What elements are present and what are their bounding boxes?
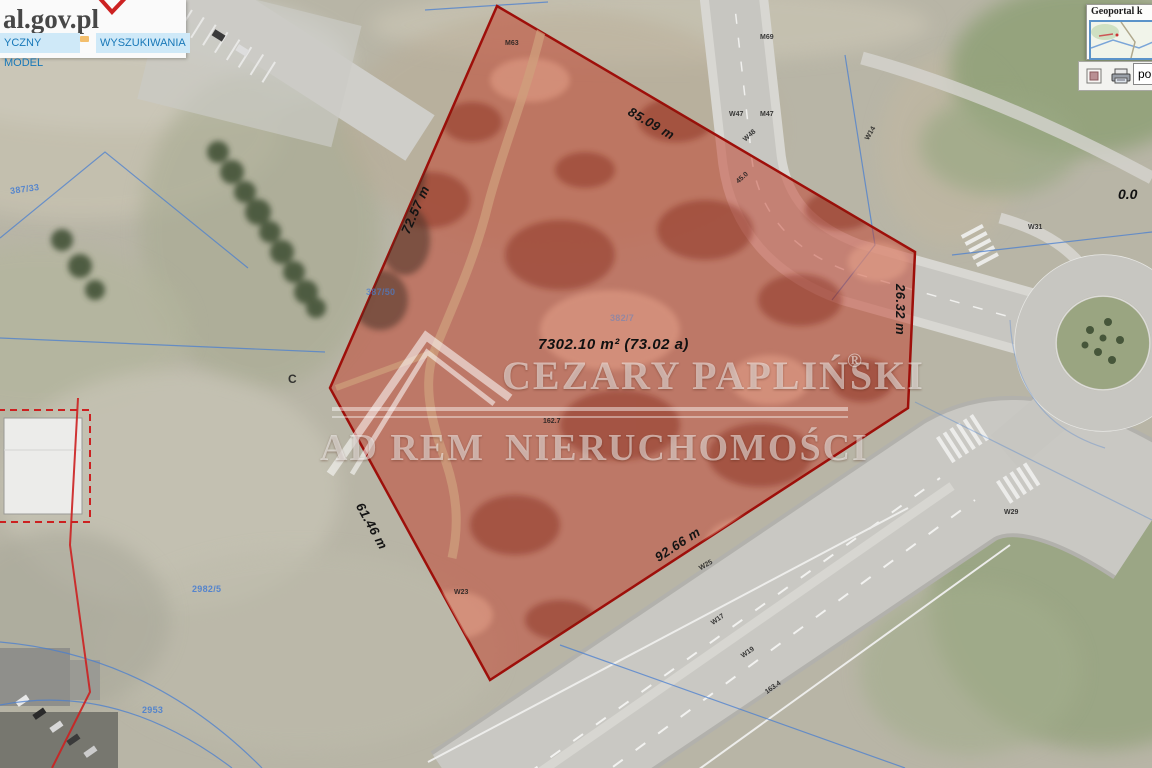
measurement-right-edge: 26.32 m xyxy=(893,284,908,335)
survey-point-label: W31 xyxy=(1028,224,1042,231)
logo-red-mark xyxy=(94,0,146,15)
printer-icon xyxy=(1111,68,1131,84)
survey-point-label: W23 xyxy=(454,589,468,596)
survey-point-label: W29 xyxy=(1004,509,1018,516)
overview-minimap[interactable] xyxy=(1089,20,1152,60)
print-icon-button[interactable] xyxy=(1111,68,1131,84)
watermark-brand-right: NIERUCHOMOŚCI xyxy=(505,426,869,470)
parcel-number: 2953 xyxy=(142,705,163,715)
tab-wyszukiwania[interactable]: WYSZUKIWANIA xyxy=(96,33,190,53)
layers-icon-button[interactable] xyxy=(1086,68,1102,84)
site-logo-text[interactable]: al.gov.pl xyxy=(3,4,99,35)
survey-point-label: M63 xyxy=(505,40,519,47)
survey-point-label: M69 xyxy=(760,34,774,41)
layers-icon xyxy=(1086,68,1102,84)
tab-numeryczny-model[interactable]: YCZNY MODEL xyxy=(0,33,80,53)
overview-panel-title: Geoportal k xyxy=(1087,5,1152,18)
scale-input[interactable] xyxy=(1133,63,1152,85)
geoportal-map-view[interactable]: 85.09 m 26.32 m 92.66 m 61.46 m 72.57 m … xyxy=(0,0,1152,768)
parcel-number: 382/7 xyxy=(610,313,634,323)
tab-new-badge xyxy=(80,36,89,42)
overview-panel: Geoportal k xyxy=(1086,4,1152,60)
watermark-brand-left: AD REM xyxy=(320,426,485,470)
survey-point-label: 162.7 xyxy=(543,418,561,425)
parcel-number: 387/50 xyxy=(366,287,395,297)
parcel-number: 2982/5 xyxy=(192,584,221,594)
minimap-graphic xyxy=(1091,22,1152,58)
edge-coordinate-value: 0.0 xyxy=(1118,186,1137,202)
parcel-area-label: 7302.10 m² (73.02 a) xyxy=(538,336,689,353)
survey-point-label: M47 xyxy=(760,111,774,118)
survey-point-label: W47 xyxy=(729,111,743,118)
watermark-registered-mark: ® xyxy=(847,350,862,373)
site-header: al.gov.pl YCZNY MODEL WYSZUKIWANIA xyxy=(0,0,186,58)
survey-point-label: C xyxy=(288,372,297,386)
